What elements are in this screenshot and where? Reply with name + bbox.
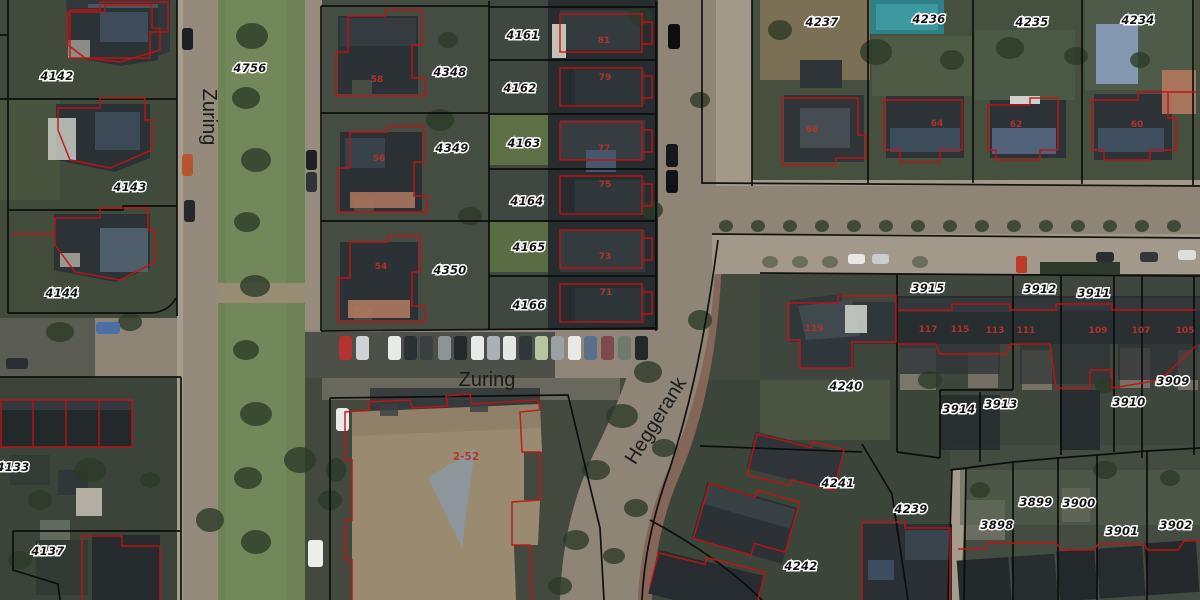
- house-number-label: 77: [598, 144, 611, 154]
- parcel-number-label: 4133: [0, 460, 30, 474]
- house-number-label: 60: [1131, 120, 1144, 130]
- parcel-number-label: 3913: [984, 397, 1017, 411]
- house-number-label: 117: [919, 325, 938, 335]
- parcel-number-label: 4350: [432, 263, 466, 277]
- house-number-label: 119: [805, 324, 824, 334]
- street-top-right: [652, 186, 1200, 234]
- parcel-number-label: 4239: [893, 502, 927, 516]
- parcel-number-label: 3910: [1112, 395, 1145, 409]
- parcel-number-label: 4162: [502, 81, 536, 95]
- parcel-number-label: 3900: [1062, 496, 1095, 510]
- house-number-label: 58: [371, 75, 384, 85]
- parcel-number-label: 4137: [30, 544, 64, 558]
- parcel-number-label: 4349: [434, 141, 468, 155]
- house-number-label: 75: [599, 180, 612, 190]
- house-number-label: 81: [598, 36, 611, 46]
- parcel-number-label: 4144: [44, 286, 78, 300]
- parcel-number-label: 4237: [804, 15, 838, 29]
- map-canvas[interactable]: ZuringZuringHeggerank 5856542-5281797775…: [0, 0, 1200, 600]
- parcel-number-label: 4241: [820, 476, 854, 490]
- house-number-label: 73: [599, 252, 612, 262]
- parcel-number-label: 4242: [783, 559, 817, 573]
- parcel-number-label: 3899: [1019, 495, 1052, 509]
- parcel-number-label: 4143: [112, 180, 146, 194]
- house-number-label: 66: [806, 125, 819, 135]
- parcel-number-label: 3898: [980, 518, 1013, 532]
- street-name-label: Zuring: [198, 89, 220, 146]
- parcel-number-label: 4348: [432, 65, 466, 79]
- house-number-label: 113: [986, 326, 1005, 336]
- house-number-label: 54: [375, 262, 388, 272]
- house-number-label: 115: [951, 325, 970, 335]
- house-number-label: 64: [931, 119, 944, 129]
- parcel-number-label: 3915: [911, 281, 944, 295]
- parcel-number-label: 4165: [511, 240, 545, 254]
- swimming-pool-blue: [1096, 24, 1138, 84]
- house-number-label: 56: [373, 154, 386, 164]
- parcel-number-label: 4164: [509, 194, 543, 208]
- house-number-label: 109: [1089, 326, 1108, 336]
- parcel-number-label: 3914: [942, 402, 975, 416]
- house-number-label: 2-52: [453, 451, 479, 463]
- parcel-number-label: 3901: [1105, 524, 1138, 538]
- house-number-label: 79: [599, 73, 612, 83]
- parcel-number-label: 4163: [506, 136, 540, 150]
- parcel-number-label: 3902: [1159, 518, 1192, 532]
- house-number-label: 107: [1132, 326, 1151, 336]
- house-number-label: 105: [1176, 326, 1195, 336]
- parcel-number-label: 4240: [828, 379, 862, 393]
- parcel-number-label: 3911: [1077, 286, 1110, 300]
- parcel-number-label: 4235: [1014, 15, 1048, 29]
- parcel-number-label: 4166: [511, 298, 545, 312]
- parcel-number-label: 4234: [1120, 13, 1154, 27]
- house-number-label: 62: [1010, 120, 1023, 130]
- parcel-number-label: 4142: [39, 69, 73, 83]
- street-name-label: Zuring: [459, 369, 516, 391]
- parcel-number-label: 3912: [1023, 282, 1056, 296]
- house-number-label: 71: [600, 288, 613, 298]
- parcel-number-label: 4756: [232, 61, 266, 75]
- aerial-map-svg: ZuringZuringHeggerank 5856542-5281797775…: [0, 0, 1200, 600]
- house-number-label: 111: [1017, 326, 1036, 336]
- parcel-number-label: 3909: [1156, 374, 1189, 388]
- parcel-number-label: 4236: [911, 12, 945, 26]
- parcel-number-label: 4161: [505, 28, 539, 42]
